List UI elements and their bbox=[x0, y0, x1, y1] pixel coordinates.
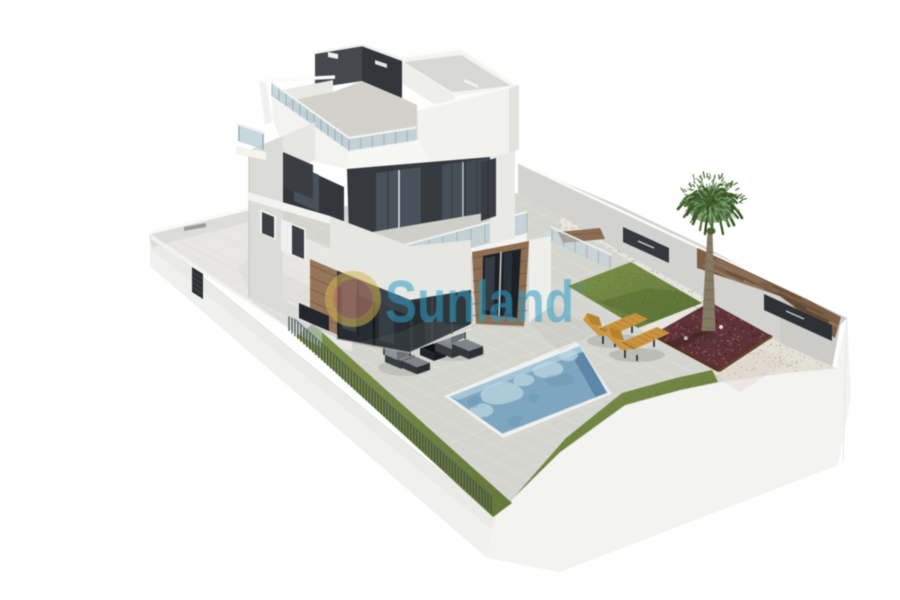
svg-text:Sunland: Sunland bbox=[385, 269, 574, 335]
svg-text:®: ® bbox=[576, 280, 586, 295]
